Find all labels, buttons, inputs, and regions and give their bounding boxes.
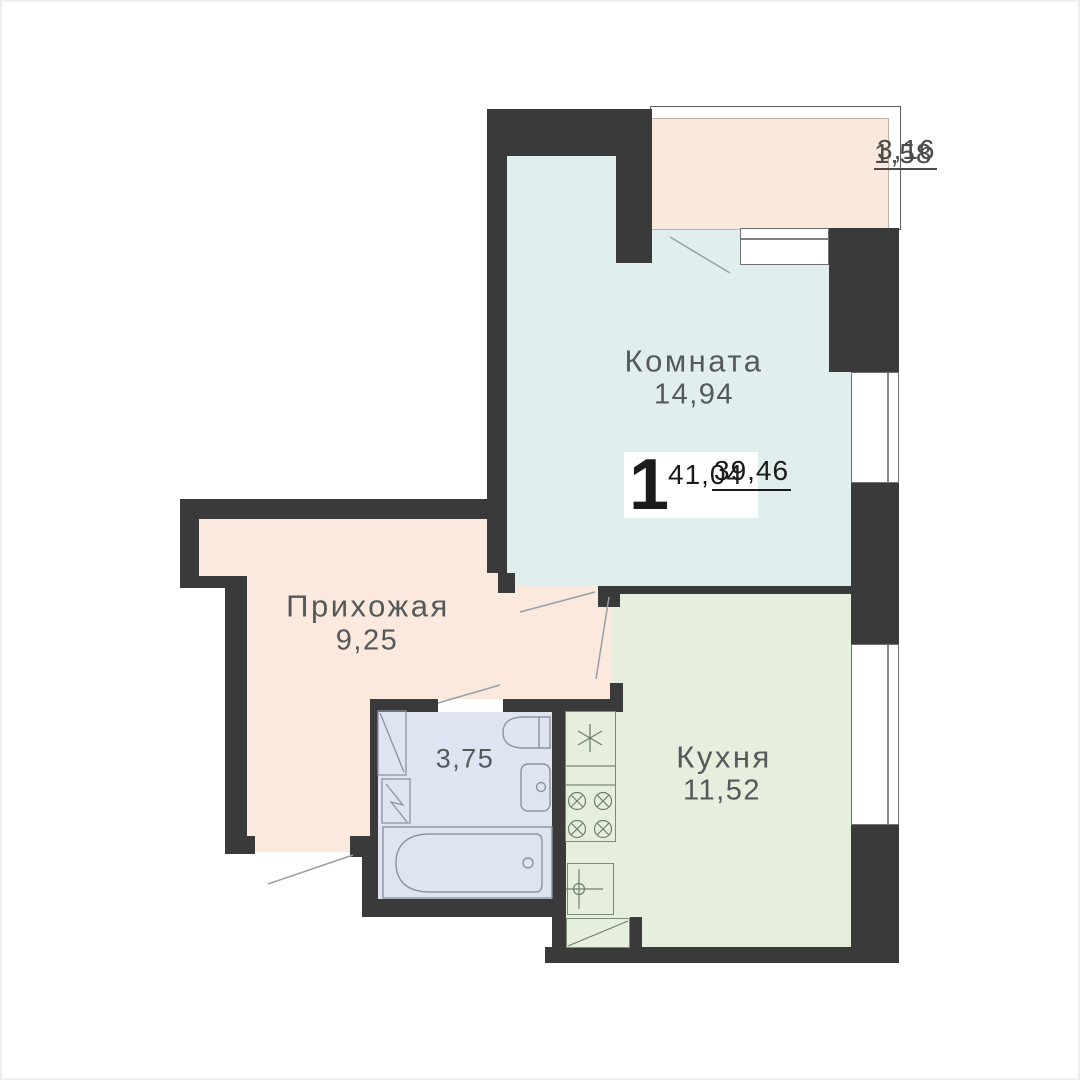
wall-segment (851, 483, 899, 644)
wall-segment (225, 836, 255, 854)
bathroom-area-label: 3,75 (436, 746, 495, 773)
rooms-count-label: 1 (629, 449, 669, 521)
kitchen-area-label: 11,52 (683, 777, 761, 806)
floorplan-canvas: Комната 14,94 Прихожая 9,25 Кухня 11,52 … (0, 0, 1080, 1080)
wall-segment (630, 917, 642, 948)
wall-segment (498, 573, 515, 593)
balcony-area-fill (650, 118, 889, 230)
wall-segment (362, 899, 566, 917)
balcony-reduced-area-label: 1,58 (874, 140, 933, 168)
wall-segment (552, 917, 566, 950)
wall-segment (552, 699, 566, 918)
wall-segment (487, 109, 507, 573)
total-area-label: 41,04 (668, 461, 743, 489)
wall-segment (851, 825, 899, 963)
wall-segment (616, 109, 652, 263)
room-label: Комната (625, 346, 764, 377)
window (851, 372, 899, 483)
kitchen-sink-cabinet-outline (567, 863, 614, 915)
wall-segment (225, 588, 247, 836)
wall-segment (598, 586, 620, 607)
bathroom-area-fill (378, 712, 552, 899)
wall-segment (829, 228, 899, 372)
wall-segment (180, 499, 199, 588)
wall-segment (598, 586, 851, 594)
room-area-label: 14,94 (654, 381, 734, 410)
balcony-window-unit (740, 228, 829, 265)
window (851, 644, 899, 825)
hallway-label: Прихожая (286, 591, 450, 622)
wall-segment (545, 947, 899, 963)
kitchen-label: Кухня (676, 742, 771, 773)
kitchen-counter-outline (565, 711, 616, 842)
wall-segment (180, 499, 489, 519)
wall-segment (378, 699, 438, 712)
vent-shaft-box (566, 918, 630, 948)
unit-info-box: 1 39,46 41,04 (624, 452, 758, 518)
hallway-area-label: 9,25 (336, 627, 398, 656)
wall-segment (180, 576, 247, 588)
